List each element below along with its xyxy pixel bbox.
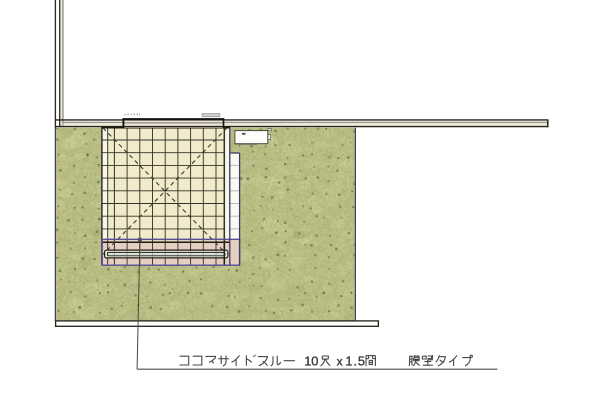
svg-text:10: 10 [304, 353, 318, 368]
svg-text:1.5: 1.5 [345, 353, 366, 368]
svg-text:x: x [337, 354, 343, 368]
